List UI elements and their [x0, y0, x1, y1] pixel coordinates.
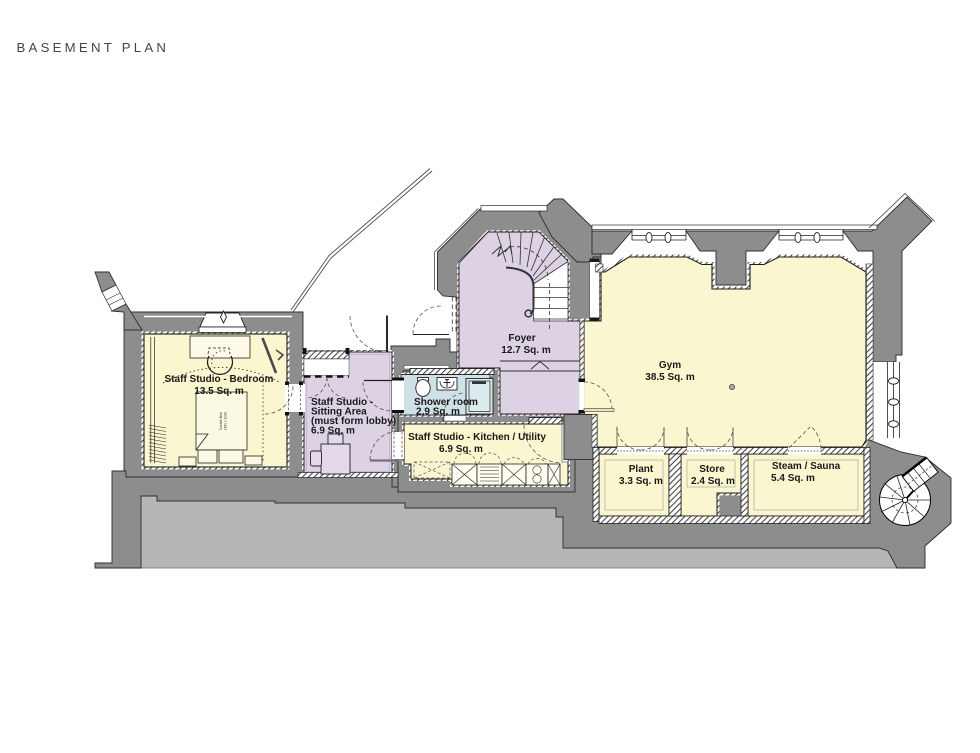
svg-text:Staff Studio - Bedroom: Staff Studio - Bedroom — [165, 374, 274, 385]
svg-text:13.5 Sq. m: 13.5 Sq. m — [194, 386, 244, 397]
svg-text:2.9 Sq. m: 2.9 Sq. m — [416, 407, 460, 418]
svg-text:Foyer: Foyer — [508, 333, 535, 344]
svg-text:12.7 Sq. m: 12.7 Sq. m — [501, 345, 551, 356]
svg-text:Double Bed: Double Bed — [219, 412, 223, 430]
svg-text:Staff Studio - Kitchen / Utili: Staff Studio - Kitchen / Utility — [408, 432, 546, 443]
svg-text:3.3 Sq. m: 3.3 Sq. m — [619, 476, 663, 487]
svg-text:Store: Store — [699, 464, 725, 475]
svg-text:Plant: Plant — [629, 464, 654, 475]
svg-text:BASEMENT PLAN: BASEMENT PLAN — [17, 40, 170, 55]
svg-text:6.9 Sq. m: 6.9 Sq. m — [311, 426, 355, 437]
svg-text:Steam / Sauna: Steam / Sauna — [772, 461, 841, 472]
svg-text:38.5 Sq. m: 38.5 Sq. m — [645, 372, 695, 383]
svg-text:2.4 Sq. m: 2.4 Sq. m — [691, 476, 735, 487]
svg-text:1950 x 2030: 1950 x 2030 — [224, 412, 228, 431]
svg-text:5.4 Sq. m: 5.4 Sq. m — [771, 473, 815, 484]
svg-text:Gym: Gym — [659, 360, 681, 371]
svg-text:6.9 Sq. m: 6.9 Sq. m — [439, 444, 483, 455]
